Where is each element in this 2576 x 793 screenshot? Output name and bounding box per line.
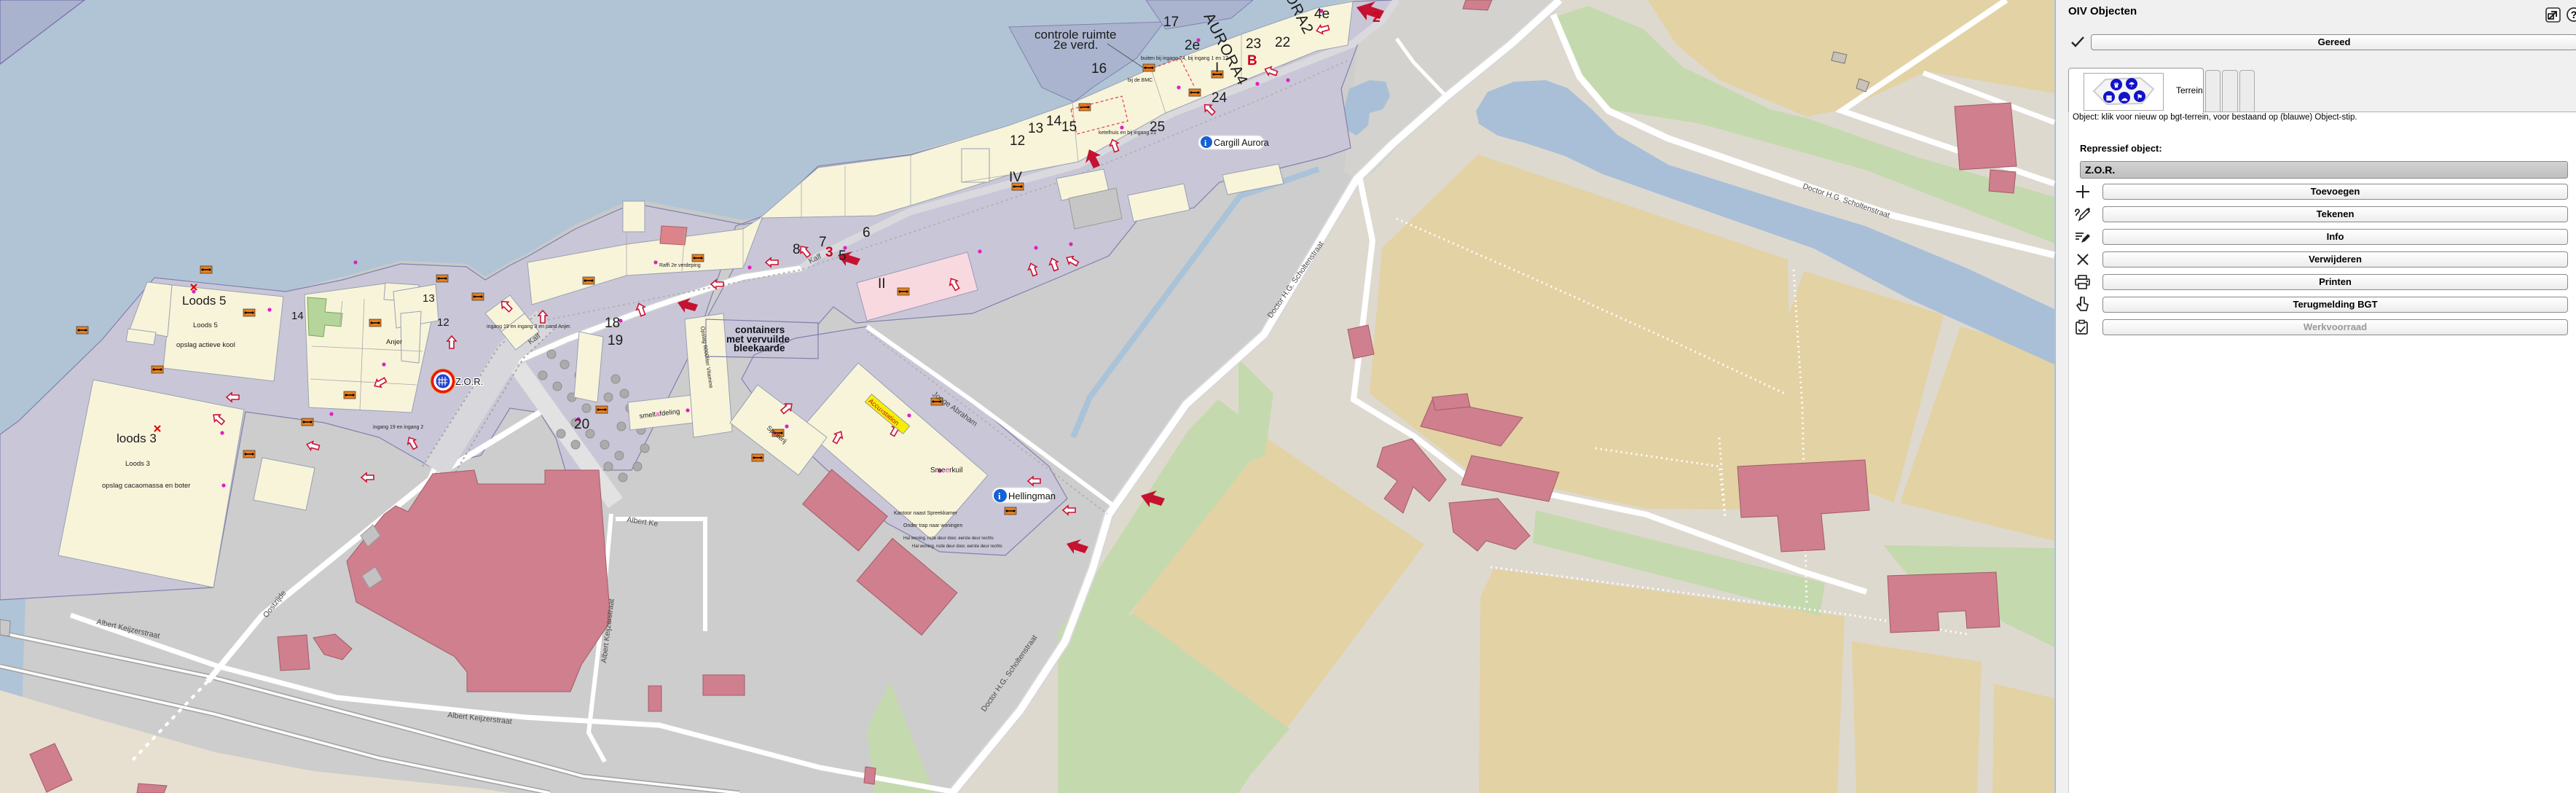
- svg-text:13: 13: [1028, 121, 1043, 136]
- svg-text:12: 12: [1010, 133, 1025, 149]
- svg-text:buiten bij ingang 24, bij inga: buiten bij ingang 24, bij ingang 1 en 17…: [1141, 56, 1230, 61]
- svg-text:Hal woning, rode deur door, ee: Hal woning, rode deur door, eerste deur …: [903, 536, 994, 541]
- svg-text:Anjer: Anjer: [386, 338, 402, 346]
- svg-text:Loods 3: Loods 3: [125, 460, 150, 468]
- svg-text:16: 16: [1091, 61, 1107, 77]
- svg-text:⚑: ⚑: [2137, 93, 2143, 101]
- svg-text:Loods 5: Loods 5: [182, 294, 227, 308]
- svg-text:ingang 19 en ingang 3 en pand: ingang 19 en ingang 3 en pand Anjer.: [487, 324, 571, 329]
- svg-text:Smeerkuil: Smeerkuil: [930, 466, 962, 474]
- svg-text:2: 2: [1373, 10, 1381, 26]
- svg-text:23: 23: [1246, 36, 1261, 52]
- svg-text:13: 13: [423, 292, 435, 305]
- svg-text:3: 3: [825, 245, 833, 260]
- svg-text:▦: ▦: [2106, 94, 2113, 101]
- svg-text:8: 8: [793, 242, 801, 257]
- svg-text:22: 22: [1275, 35, 1290, 50]
- svg-text:?: ?: [2571, 9, 2576, 20]
- svg-text:II: II: [878, 276, 886, 292]
- svg-text:2e: 2e: [1185, 38, 1200, 53]
- svg-text:IV: IV: [1009, 170, 1022, 185]
- svg-text:14: 14: [291, 310, 304, 322]
- svg-text:18: 18: [605, 316, 620, 331]
- svg-text:☂: ☂: [2129, 81, 2135, 88]
- svg-text:6: 6: [863, 225, 871, 241]
- svg-text:bij de BMC: bij de BMC: [1128, 78, 1152, 83]
- svg-text:Kantoor naast Spreekkamer: Kantoor naast Spreekkamer: [894, 511, 958, 516]
- svg-text:opslag cacaomassa en boter: opslag cacaomassa en boter: [102, 482, 190, 490]
- svg-text:2e verd.: 2e verd.: [1053, 38, 1098, 52]
- svg-text:♛: ♛: [2113, 82, 2119, 89]
- svg-text:ketelhuis en bij ingang 21: ketelhuis en bij ingang 21: [1099, 130, 1156, 136]
- svg-text:ingang 19 en ingang 2: ingang 19 en ingang 2: [373, 425, 423, 430]
- svg-text:Hellingman: Hellingman: [1008, 491, 1056, 501]
- svg-text:B: B: [1247, 53, 1257, 69]
- svg-text:Cargill Aurora: Cargill Aurora: [1214, 138, 1269, 148]
- svg-text:Onder trap naar woningen: Onder trap naar woningen: [903, 523, 962, 528]
- svg-text:15: 15: [1061, 120, 1077, 135]
- svg-text:opslag actieve kool: opslag actieve kool: [176, 341, 235, 349]
- svg-text:Raffi 2e verdeping: Raffi 2e verdeping: [659, 263, 701, 268]
- svg-text:Hal woning, rode deur door, ee: Hal woning, rode deur door, eerste deur …: [912, 544, 1002, 549]
- svg-text:i: i: [998, 491, 1001, 501]
- svg-text:20: 20: [574, 417, 589, 432]
- svg-text:bleekaarde: bleekaarde: [734, 343, 785, 353]
- svg-text:5: 5: [839, 249, 847, 264]
- svg-text:12: 12: [437, 316, 449, 329]
- svg-text:19: 19: [608, 333, 623, 348]
- svg-text:24: 24: [1212, 90, 1228, 106]
- svg-text:4e: 4e: [1314, 7, 1330, 22]
- svg-text:I: I: [1215, 60, 1219, 76]
- svg-text:loods 3: loods 3: [117, 431, 157, 445]
- svg-text:☁: ☁: [2121, 95, 2128, 102]
- svg-text:Z.O.R.: Z.O.R.: [455, 376, 483, 387]
- svg-text:Loods 5: Loods 5: [193, 321, 218, 329]
- svg-text:17: 17: [1163, 15, 1179, 30]
- svg-text:14: 14: [1046, 114, 1062, 129]
